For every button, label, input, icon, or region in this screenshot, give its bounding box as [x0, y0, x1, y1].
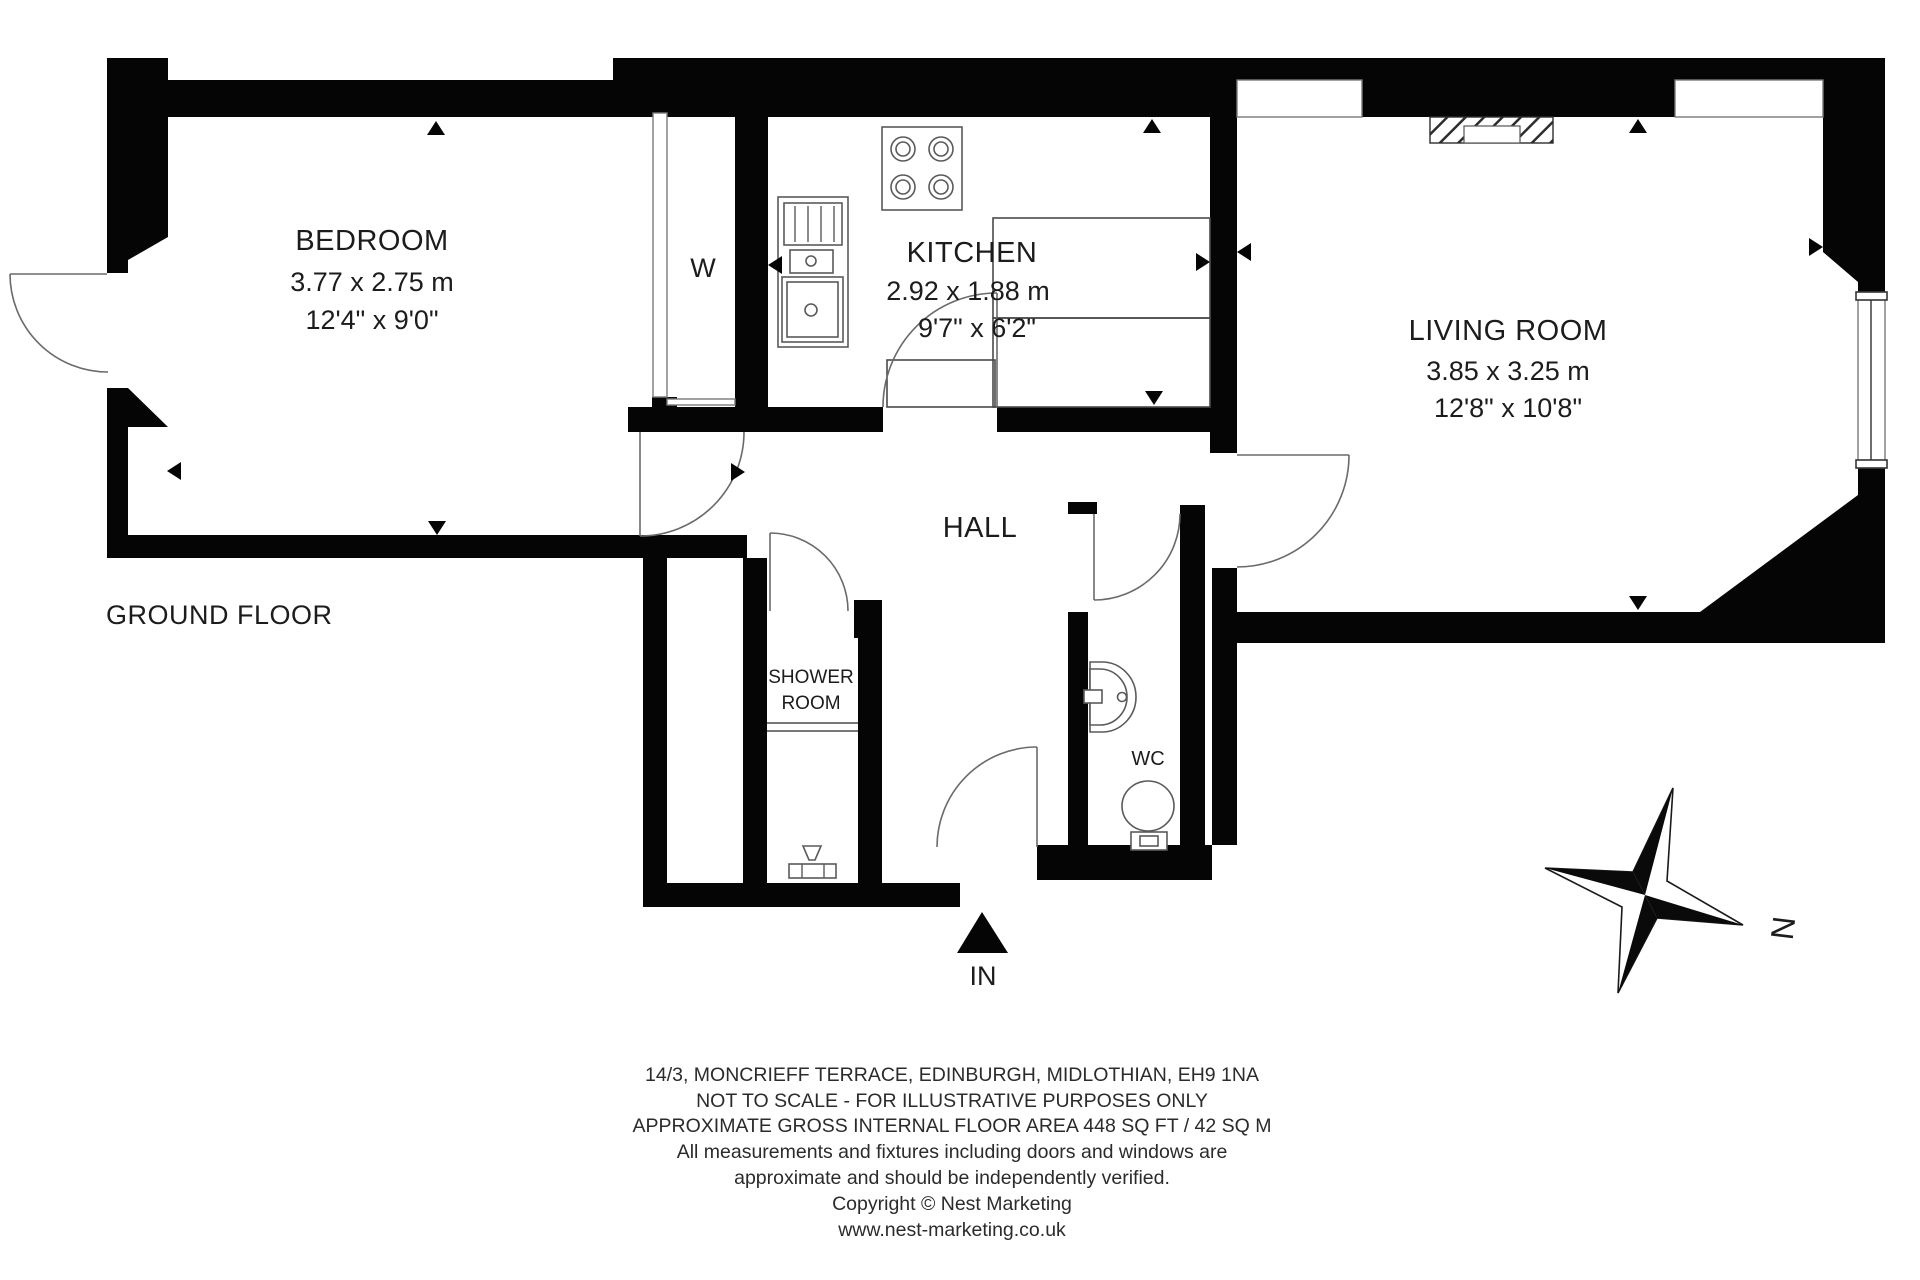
room-dim-metric-bedroom: 3.77 x 2.75 m	[290, 267, 454, 297]
room-label-bedroom: BEDROOM	[295, 225, 448, 257]
entrance-label: IN	[970, 961, 997, 991]
floor-plan: IN N BEDROOM 3.77 x 2.75 m 12'4" x 9'0" …	[0, 0, 1920, 1280]
room-label-wc: WC	[1131, 748, 1164, 770]
room-label-wardrobe: W	[690, 253, 716, 283]
room-dim-imperial-kitchen: 9'7" x 6'2"	[918, 313, 1036, 343]
footer-disclaimer: 14/3, MONCRIEFF TERRACE, EDINBURGH, MIDL…	[633, 1064, 1272, 1241]
door-bay-bedroom	[10, 274, 108, 372]
door-wc	[1094, 514, 1180, 600]
door-entrance	[937, 747, 1037, 847]
footer-floor-area: APPROXIMATE GROSS INTERNAL FLOOR AREA 44…	[633, 1115, 1272, 1137]
floorplan-page: IN N BEDROOM 3.77 x 2.75 m 12'4" x 9'0" …	[0, 0, 1920, 1280]
room-label-shower-line2: ROOM	[781, 693, 840, 714]
compass-north-label: N	[1764, 914, 1803, 941]
window-recess-living-right	[1675, 80, 1823, 117]
stove-icon	[882, 127, 962, 210]
sink-icon	[778, 197, 848, 347]
footer-address: 14/3, MONCRIEFF TERRACE, EDINBURGH, MIDL…	[645, 1064, 1259, 1086]
footer-website: www.nest-marketing.co.uk	[837, 1219, 1066, 1241]
basin-icon	[1084, 662, 1136, 732]
window-living-right-wall	[1856, 292, 1887, 468]
footer-not-to-scale: NOT TO SCALE - FOR ILLUSTRATIVE PURPOSES…	[696, 1090, 1208, 1112]
footer-copyright: Copyright © Nest Marketing	[832, 1193, 1072, 1215]
door-living-room	[1237, 455, 1349, 567]
room-label-hall: HALL	[943, 512, 1018, 544]
shower-tray-line	[767, 723, 858, 731]
toilet-icon	[1122, 781, 1174, 850]
door-bedroom	[640, 432, 744, 536]
compass-icon	[1545, 788, 1743, 993]
floor-label: GROUND FLOOR	[106, 600, 333, 630]
room-label-living-room: LIVING ROOM	[1409, 315, 1608, 347]
room-label-shower-line1: SHOWER	[768, 667, 854, 688]
room-label-kitchen: KITCHEN	[907, 237, 1038, 269]
room-dim-imperial-living-room: 12'8" x 10'8"	[1434, 393, 1582, 423]
footer-measurements-1: All measurements and fixtures including …	[677, 1141, 1228, 1163]
fireplace-icon	[1430, 117, 1553, 143]
room-dim-metric-kitchen: 2.92 x 1.88 m	[886, 276, 1050, 306]
room-dim-metric-living-room: 3.85 x 3.25 m	[1426, 356, 1590, 386]
footer-measurements-2: approximate and should be independently …	[734, 1167, 1170, 1189]
entrance-arrow-icon	[957, 912, 1008, 953]
door-kitchen	[883, 293, 997, 407]
shower-fixture-icon	[789, 846, 836, 878]
door-shower-room	[770, 533, 848, 611]
room-dim-imperial-bedroom: 12'4" x 9'0"	[305, 305, 438, 335]
window-recess-living-left	[1237, 80, 1362, 117]
walls	[107, 58, 1885, 907]
